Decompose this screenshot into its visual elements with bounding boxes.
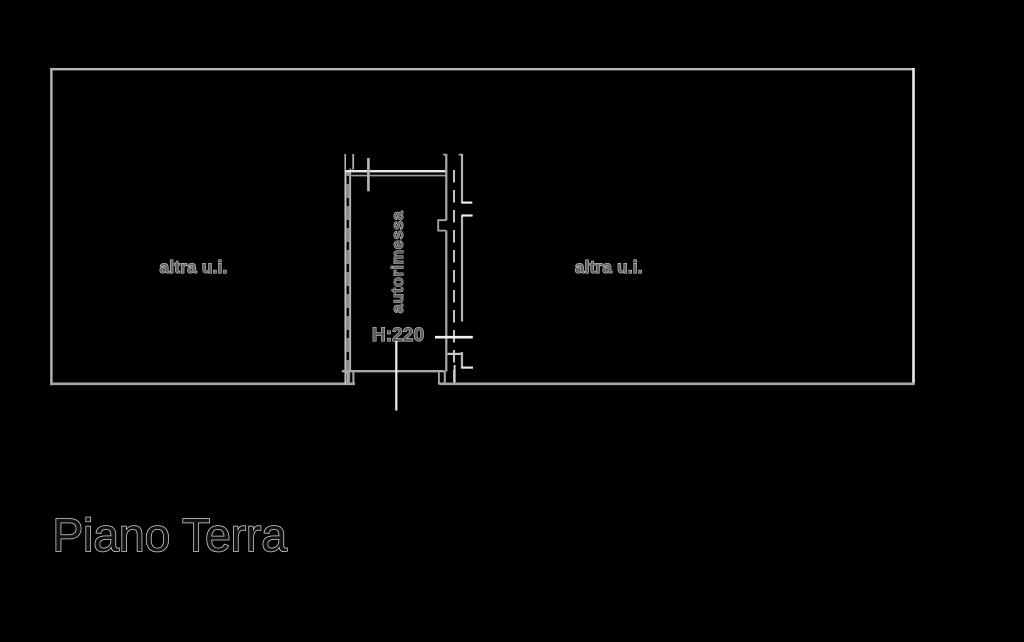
svg-text:Piano Terra: Piano Terra — [53, 509, 288, 561]
svg-text:altra u.i.: altra u.i. — [160, 257, 228, 277]
svg-text:autorimessa: autorimessa — [389, 210, 407, 313]
svg-text:H:220: H:220 — [372, 325, 424, 346]
svg-text:altra u.i.: altra u.i. — [575, 257, 643, 277]
